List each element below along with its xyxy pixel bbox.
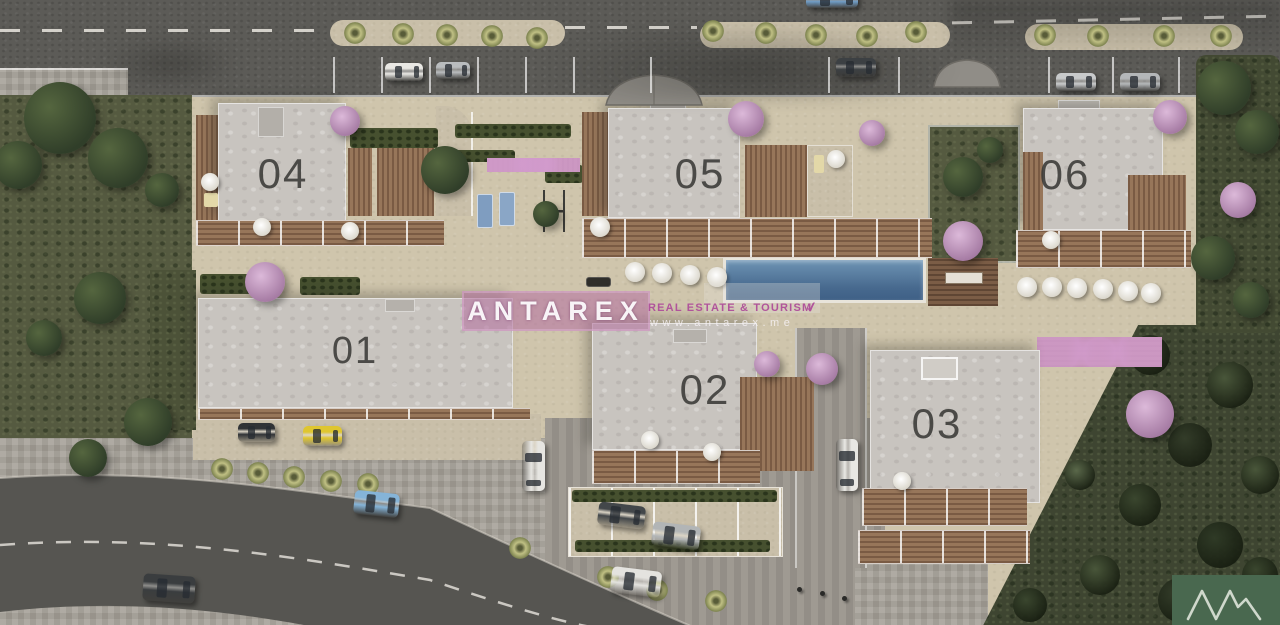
parking-line	[1178, 57, 1180, 93]
palm-tree	[344, 22, 366, 44]
flowering-tree	[754, 351, 780, 377]
parasol	[1141, 283, 1161, 303]
palm-tree	[1153, 25, 1175, 47]
car-rear-window	[633, 510, 641, 525]
tree	[69, 439, 107, 477]
car-windshield	[248, 426, 255, 440]
parking-line	[525, 57, 527, 93]
palm-tree	[702, 20, 724, 42]
tree	[1233, 282, 1269, 318]
parking-line	[898, 57, 900, 93]
palm-tree	[1210, 25, 1232, 47]
palm-tree	[805, 24, 827, 46]
parking-line	[1112, 57, 1114, 93]
watermark-brand: ANTAREX	[467, 296, 645, 327]
parasol	[1067, 278, 1087, 298]
car	[522, 441, 545, 491]
tree	[1191, 236, 1235, 280]
parking-line	[477, 57, 479, 93]
palm-tree	[509, 537, 531, 559]
parasol	[625, 262, 645, 282]
flowering-tree	[859, 120, 885, 146]
tree	[124, 398, 172, 446]
car-rear-window	[1150, 76, 1156, 88]
agency-logo-box	[1172, 575, 1280, 625]
car	[610, 566, 663, 598]
palm-tree	[526, 27, 548, 49]
tree	[74, 272, 126, 324]
car-windshield	[445, 64, 452, 76]
car	[806, 0, 858, 8]
car-rear-window	[462, 65, 467, 76]
car	[651, 521, 702, 551]
car-windshield	[313, 429, 321, 443]
parasol	[201, 173, 219, 191]
car-windshield	[664, 526, 676, 544]
palm-tree	[392, 23, 414, 45]
palm-tree	[1034, 24, 1056, 46]
watermark-website: www.antarex.me	[650, 317, 870, 329]
palm-tree	[755, 22, 777, 44]
parasol	[253, 218, 271, 236]
car	[385, 63, 423, 81]
flowering-tree	[330, 106, 360, 136]
parking-line	[573, 57, 575, 93]
car-windshield	[623, 571, 635, 591]
palm-tree	[1087, 25, 1109, 47]
parking-line	[429, 57, 431, 93]
car-rear-window	[648, 575, 657, 592]
parasol	[1093, 279, 1113, 299]
roof-object	[586, 277, 611, 287]
car	[597, 501, 646, 530]
parasol	[1042, 277, 1062, 297]
parasol	[680, 265, 700, 285]
tree	[24, 82, 96, 154]
car-windshield	[365, 494, 376, 512]
mountain-peaks-icon	[1180, 579, 1272, 623]
palm-tree	[436, 24, 458, 46]
tree	[1235, 110, 1279, 154]
car-rear-window	[846, 0, 853, 5]
pedestrian	[797, 587, 802, 592]
car	[303, 426, 342, 446]
parasol	[893, 472, 911, 490]
parasol	[652, 263, 672, 283]
car-windshield	[525, 453, 542, 462]
site-plan-render: 04 05 06 01 02 03 AN	[0, 0, 1280, 625]
parking-line	[1048, 57, 1050, 93]
palm-tree	[320, 470, 342, 492]
flowering-tree	[1220, 182, 1256, 218]
palm-tree	[481, 25, 503, 47]
parasol	[703, 443, 721, 461]
car-windshield	[1130, 76, 1138, 89]
car-rear-window	[182, 581, 190, 599]
flowering-tree	[728, 101, 764, 137]
car-windshield	[156, 578, 168, 598]
pedestrian	[842, 596, 847, 601]
parasol	[1118, 281, 1138, 301]
parking-line	[381, 57, 383, 93]
car-rear-window	[387, 498, 395, 514]
car-windshield	[395, 66, 403, 79]
car-windshield	[609, 506, 620, 524]
parking-line	[333, 57, 335, 93]
watermark-brand-box: ANTAREX	[462, 291, 650, 331]
car	[436, 62, 470, 79]
parasol	[827, 150, 845, 168]
car-rear-window	[1086, 76, 1092, 88]
parking-line	[828, 57, 830, 93]
car-windshield	[846, 61, 854, 75]
car-windshield	[820, 0, 830, 6]
flowering-tree	[1126, 390, 1174, 438]
parasol	[1017, 277, 1037, 297]
parasol	[341, 222, 359, 240]
tree	[88, 128, 148, 188]
parasol	[1042, 231, 1060, 249]
tree	[0, 141, 42, 189]
car	[1056, 73, 1096, 91]
car	[1120, 73, 1160, 91]
car	[836, 439, 858, 491]
tree	[145, 173, 179, 207]
tree	[421, 146, 469, 194]
palm-tree	[905, 21, 927, 43]
car	[353, 490, 400, 519]
flowering-tree	[806, 353, 838, 385]
palm-tree	[211, 458, 233, 480]
palm-tree	[705, 590, 727, 612]
pedestrian	[820, 591, 825, 596]
parasol	[641, 431, 659, 449]
car-windshield	[839, 451, 855, 460]
tree	[1197, 61, 1251, 115]
car	[836, 58, 876, 77]
flowering-tree	[1153, 100, 1187, 134]
flowering-tree	[943, 221, 983, 261]
tree	[533, 201, 559, 227]
car-rear-window	[414, 66, 419, 78]
car-rear-window	[866, 61, 872, 73]
car-rear-window	[333, 430, 338, 443]
palm-tree	[283, 466, 305, 488]
palm-tree	[856, 25, 878, 47]
tree	[26, 320, 62, 356]
car-rear-window	[840, 479, 855, 486]
flowering-tree	[245, 262, 285, 302]
tree	[977, 137, 1003, 163]
car	[142, 573, 196, 604]
palm-tree	[247, 462, 269, 484]
car-rear-window	[526, 480, 542, 487]
car-rear-window	[266, 426, 271, 438]
parking-line	[650, 57, 652, 93]
car-windshield	[1066, 76, 1074, 89]
parasol	[590, 217, 610, 237]
car-rear-window	[687, 530, 696, 546]
car	[238, 423, 275, 442]
tree	[943, 157, 983, 197]
